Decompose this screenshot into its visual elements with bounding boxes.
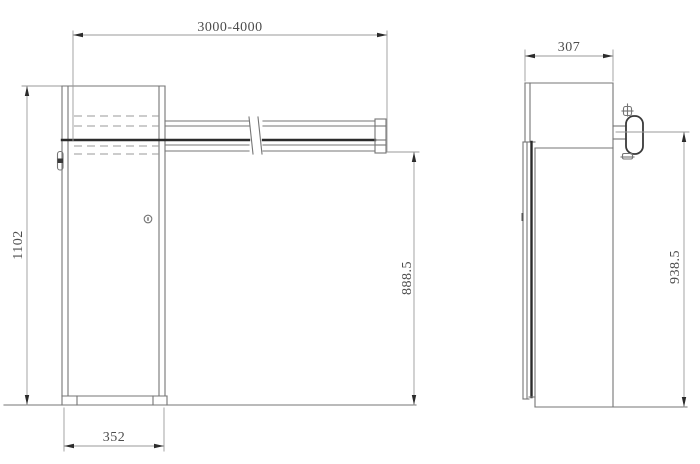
dimension-boom-axis-height: 888.5 xyxy=(387,152,419,405)
arrow-left-icon xyxy=(73,33,83,37)
arrow-up-icon xyxy=(25,86,29,96)
arrow-up-icon xyxy=(412,152,416,162)
boom-arm xyxy=(62,117,386,154)
arrow-up-icon xyxy=(682,132,686,142)
hinge-pin xyxy=(58,159,64,164)
break-line xyxy=(249,117,253,154)
dimension-total-height: 1102 xyxy=(11,86,29,405)
door-handle-tick xyxy=(522,213,524,221)
arrow-right-icon xyxy=(603,54,613,58)
arrow-left-icon xyxy=(64,444,74,448)
arrow-down-icon xyxy=(412,395,416,405)
boom-bracket-oval xyxy=(626,116,643,154)
side-view: 307 938.5 xyxy=(522,40,690,407)
boom-bracket xyxy=(613,104,643,159)
dimension-label-boom-length: 3000-4000 xyxy=(197,20,262,35)
dimension-label-cabinet-depth: 307 xyxy=(558,40,581,55)
boom-arm-hidden-lines xyxy=(74,116,159,154)
dimension-cabinet-width: 352 xyxy=(64,408,164,451)
barrier-gate-drawing: 3000-4000 1102 888.5 352 xyxy=(0,0,700,464)
dimension-bracket-height: 938.5 xyxy=(616,132,689,407)
dimension-label-cabinet-width: 352 xyxy=(103,430,126,445)
arrow-left-icon xyxy=(525,54,535,58)
arrow-down-icon xyxy=(25,395,29,405)
arm-end-cap xyxy=(375,119,386,153)
cabinet-front xyxy=(22,86,167,405)
technical-drawing-canvas: 3000-4000 1102 888.5 352 xyxy=(0,0,700,464)
dimension-label-bracket-height: 938.5 xyxy=(668,250,683,284)
dimension-cabinet-depth: 307 xyxy=(525,40,613,81)
dimension-label-total-height: 1102 xyxy=(11,230,26,259)
break-line xyxy=(258,117,262,154)
arrow-right-icon xyxy=(377,33,387,37)
arrow-right-icon xyxy=(154,444,164,448)
front-view: 3000-4000 1102 888.5 352 xyxy=(4,20,419,451)
arrow-down-icon xyxy=(682,397,686,407)
dimension-label-boom-axis-height: 888.5 xyxy=(400,261,415,295)
